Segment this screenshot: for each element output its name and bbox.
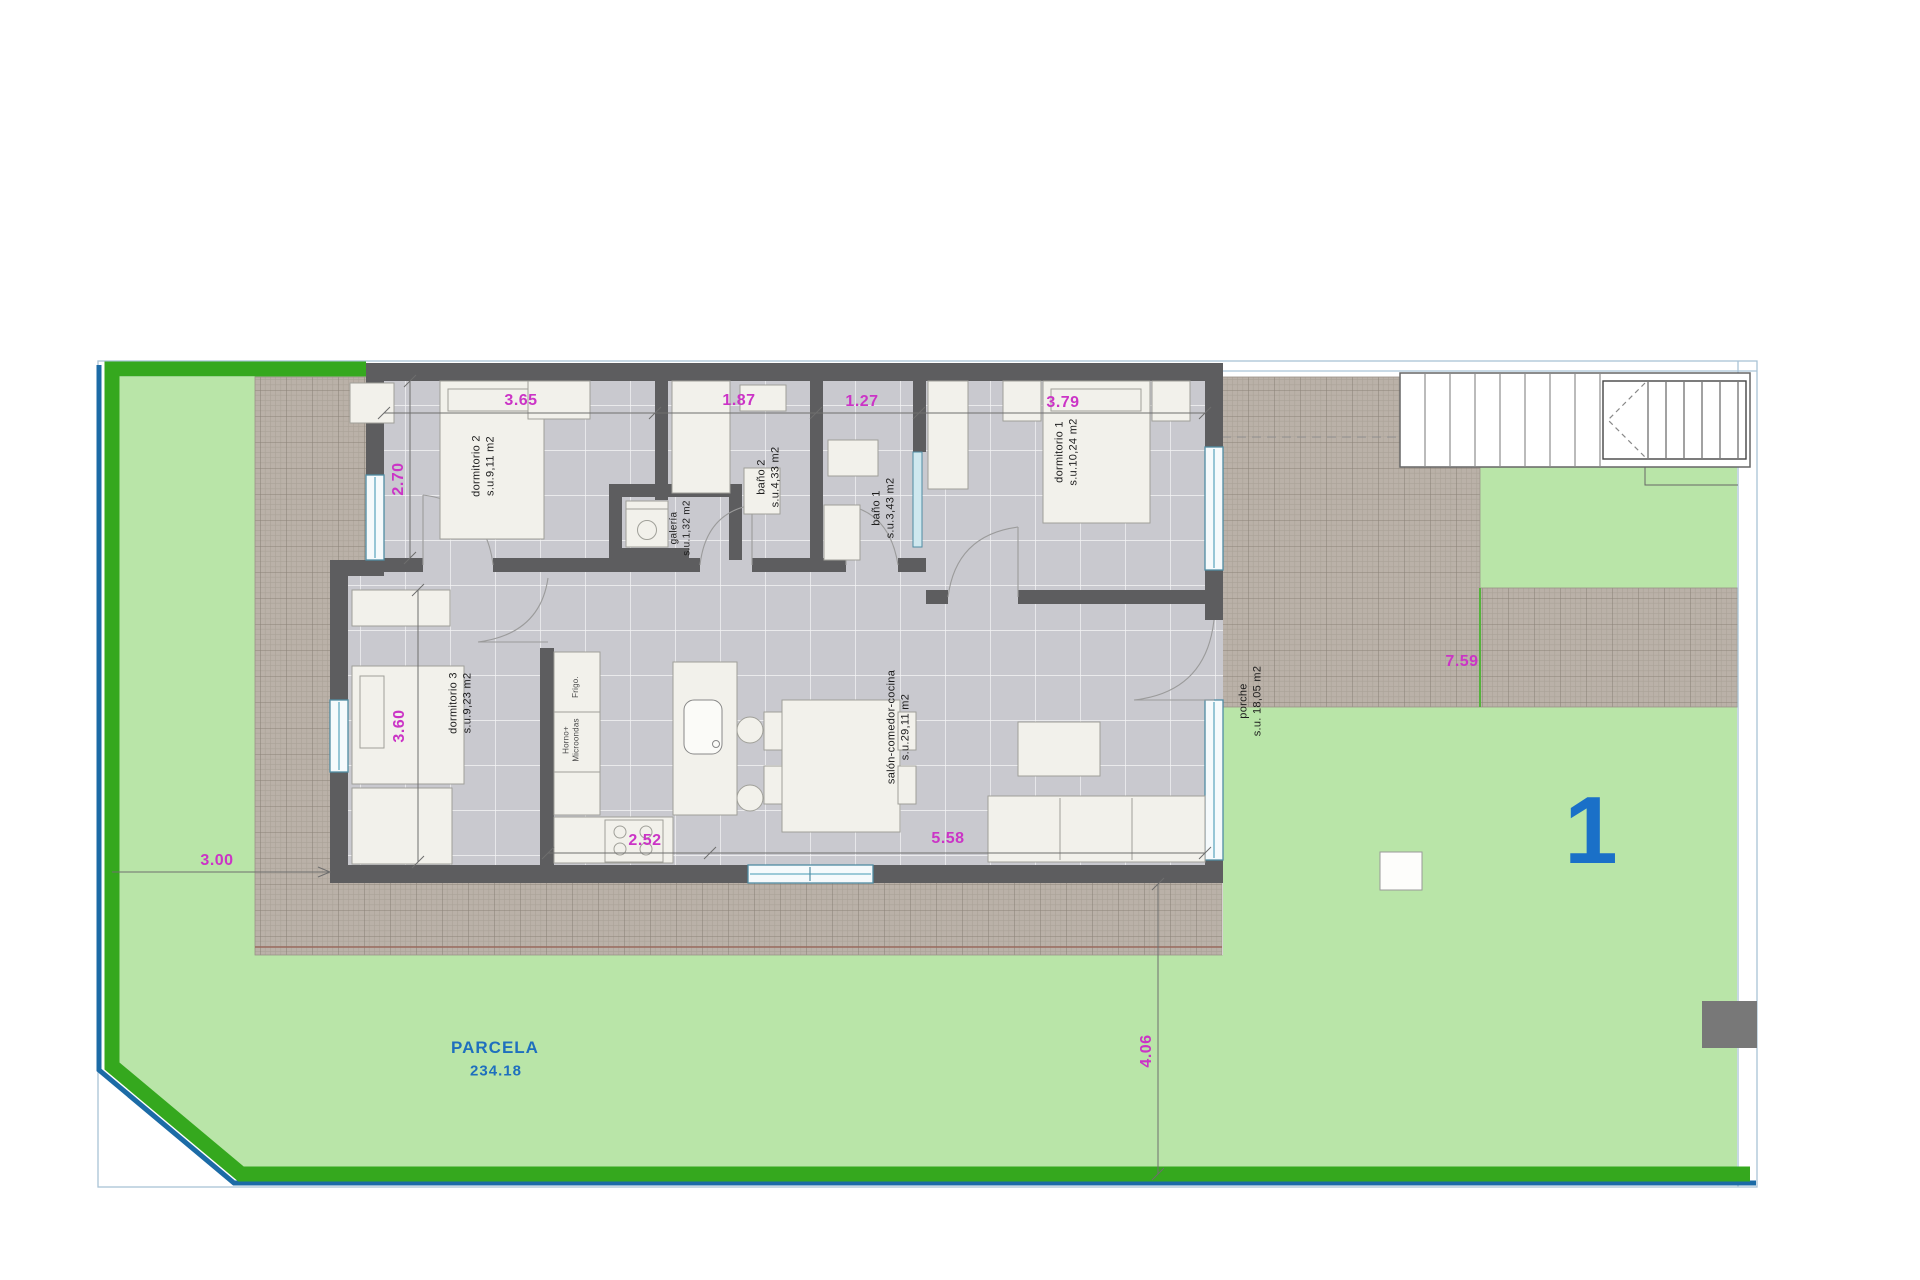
room-area: s.u.9,23 m2 [461, 672, 475, 734]
nightstand [1152, 381, 1190, 421]
room-name: salón-comedor-cocina [885, 670, 899, 784]
nightstand [350, 383, 394, 423]
room-area: s.u.29,11 m2 [899, 670, 913, 784]
window-salon-east [1205, 700, 1223, 860]
room-name: porche [1237, 666, 1251, 737]
dim-bano1-width: 1.27 [845, 393, 878, 411]
room-label-galeria: galería s.u.1,32 m2 [669, 500, 694, 556]
window-dormitorio3-west [330, 700, 348, 772]
room-area: s.u.9,11 m2 [484, 435, 498, 497]
room-label-dormitorio-2: dormitorio 2 s.u.9,11 m2 [470, 435, 498, 497]
room-area: s.u.4,33 m2 [769, 447, 783, 508]
room-label-dormitorio-3: dormitorio 3 s.u.9,23 m2 [447, 672, 475, 734]
stool [737, 785, 763, 811]
room-label-salon: salón-comedor-cocina s.u.29,11 m2 [885, 670, 913, 784]
dim-dormitorio3-height: 3.60 [391, 709, 409, 742]
dim-east-walk: 7.59 [1445, 653, 1478, 671]
label-fridge: Frigo. [571, 676, 581, 698]
room-label-bano-1: baño 1 s.u.3,43 m2 [870, 478, 898, 539]
shower-screen-bano1 [913, 452, 922, 547]
shower-bano2 [672, 381, 730, 493]
wall-east-2 [1205, 570, 1223, 620]
room-name: dormitorio 1 [1053, 418, 1067, 485]
room-label-bano-2: baño 2 s.u.4,33 m2 [755, 447, 783, 508]
nightstand [1003, 381, 1041, 421]
walkway-hatch [1480, 588, 1738, 707]
utility-box [1702, 1001, 1757, 1048]
shower-bano1 [928, 381, 968, 489]
dim-dormitorio2-width: 3.65 [504, 392, 537, 410]
dim-bano2-width: 1.87 [722, 392, 755, 410]
washing-machine [626, 501, 668, 547]
wall-south-left [330, 865, 748, 883]
wardrobe-dormitorio3 [352, 590, 450, 626]
wall-south-right [873, 865, 1223, 883]
room-label-porche: porche s.u. 18,05 m2 [1237, 666, 1265, 737]
site-plan-svg [0, 0, 1920, 1280]
pillow [360, 676, 384, 748]
room-name: dormitorio 3 [447, 672, 461, 734]
dim-dormitorio2-height: 2.70 [390, 462, 408, 495]
room-label-dormitorio-1: dormitorio 1 s.u.10,24 m2 [1053, 418, 1081, 485]
label-oven-microwave: Horno+ Microondas [562, 718, 583, 761]
dim-dormitorio1-width: 3.79 [1046, 394, 1079, 412]
garden-box [1380, 852, 1422, 890]
dim-kitchen-width: 2.52 [628, 832, 661, 850]
room-name: baño 1 [870, 478, 884, 539]
dim-south-setback: 4.06 [1138, 1034, 1156, 1067]
chair [764, 766, 782, 804]
toilet-bano1 [824, 505, 860, 560]
window-dormitorio2-west [366, 475, 384, 560]
sofa [988, 796, 1205, 862]
sink-bano1 [828, 440, 878, 476]
wall-east-3 [1205, 860, 1223, 883]
parcel-area-value: 234.18 [470, 1063, 522, 1080]
dining-table [782, 700, 900, 832]
room-area: s.u.3,43 m2 [884, 478, 898, 539]
room-area: s.u.10,24 m2 [1067, 418, 1081, 485]
window-dormitorio1-east [1205, 447, 1223, 570]
chair [764, 712, 782, 750]
room-area: s.u. 18,05 m2 [1251, 666, 1265, 737]
dim-salon-width: 5.58 [931, 830, 964, 848]
coffee-table [1018, 722, 1100, 776]
unit-number: 1 [1564, 776, 1617, 886]
wall-north [366, 363, 1223, 381]
island-sink [684, 700, 722, 754]
room-area: s.u.1,32 m2 [681, 500, 694, 556]
dim-west-setback: 3.00 [200, 852, 233, 870]
floor-plan-canvas: dormitorio 2 s.u.9,11 m2 baño 2 s.u.4,33… [0, 0, 1920, 1280]
parcel-label: PARCELA [451, 1038, 539, 1058]
room-name: galería [669, 500, 682, 556]
bed-trundle [352, 788, 452, 864]
window-salon-south [748, 865, 873, 883]
wall-east-1 [1205, 363, 1223, 447]
room-name: baño 2 [755, 447, 769, 508]
stool [737, 717, 763, 743]
room-name: dormitorio 2 [470, 435, 484, 497]
